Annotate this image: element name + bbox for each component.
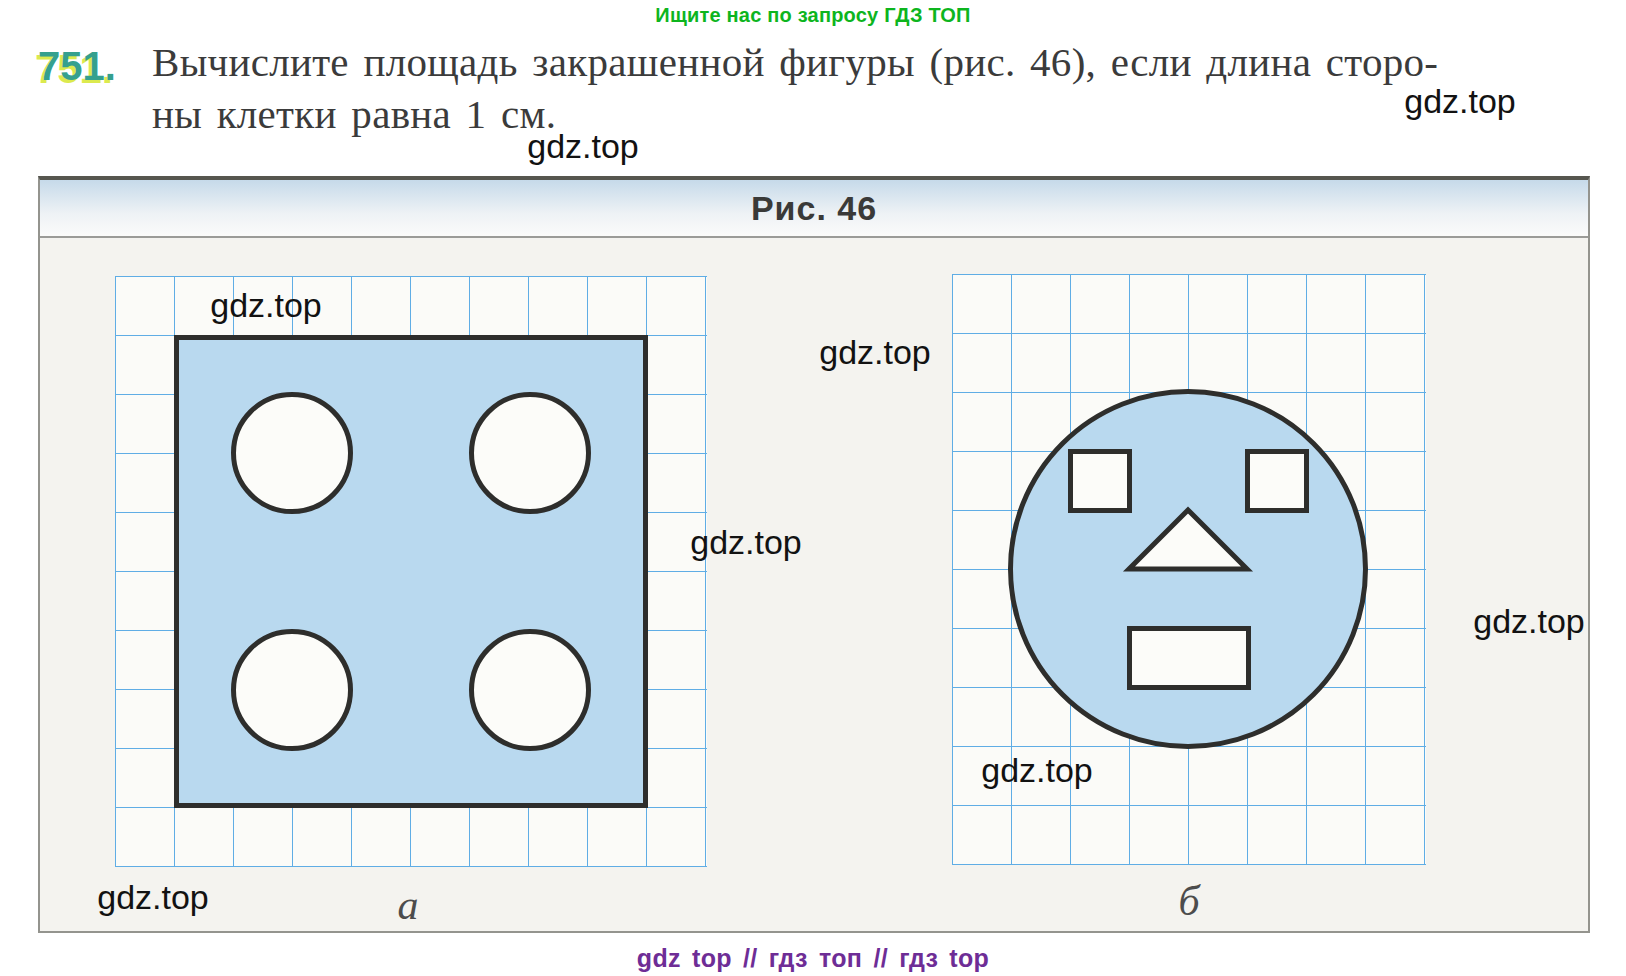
gdz-watermark: gdz.top bbox=[981, 751, 1093, 790]
footer-watermark: gdz top // гдз топ // гдз top bbox=[0, 944, 1626, 973]
gdz-watermark: gdz.top bbox=[210, 286, 322, 325]
circle-hole-bottom-left bbox=[231, 629, 353, 751]
circle-hole-top-right bbox=[469, 392, 591, 514]
problem-number: 751. bbox=[38, 44, 116, 89]
gdz-watermark: gdz.top bbox=[97, 878, 209, 917]
gdz-watermark: gdz.top bbox=[819, 333, 931, 372]
label-b: б bbox=[1178, 877, 1199, 925]
circle-hole-bottom-right bbox=[469, 629, 591, 751]
triangle-hole bbox=[1118, 497, 1258, 575]
label-a: а bbox=[398, 881, 419, 929]
scanned-textbook-page: Ищите нас по запросу ГДЗ ТОП 751. Вычисл… bbox=[0, 0, 1626, 976]
problem-text-line2: ны клетки равна 1 см. bbox=[152, 90, 556, 138]
problem-text-line1: Вычислите площадь закрашенной фигуры (ри… bbox=[152, 38, 1438, 86]
gdz-watermark: gdz.top bbox=[690, 523, 802, 562]
circle-hole-top-left bbox=[231, 392, 353, 514]
gdz-watermark: gdz.top bbox=[527, 127, 639, 166]
promo-banner: Ищите нас по запросу ГДЗ ТОП bbox=[0, 4, 1626, 27]
shaded-square bbox=[174, 335, 648, 808]
gdz-watermark: gdz.top bbox=[1404, 82, 1516, 121]
gdz-watermark: gdz.top bbox=[1473, 602, 1585, 641]
rect-hole bbox=[1127, 626, 1251, 690]
figure-caption: Рис. 46 bbox=[751, 189, 877, 228]
figure-header: Рис. 46 bbox=[40, 180, 1588, 238]
